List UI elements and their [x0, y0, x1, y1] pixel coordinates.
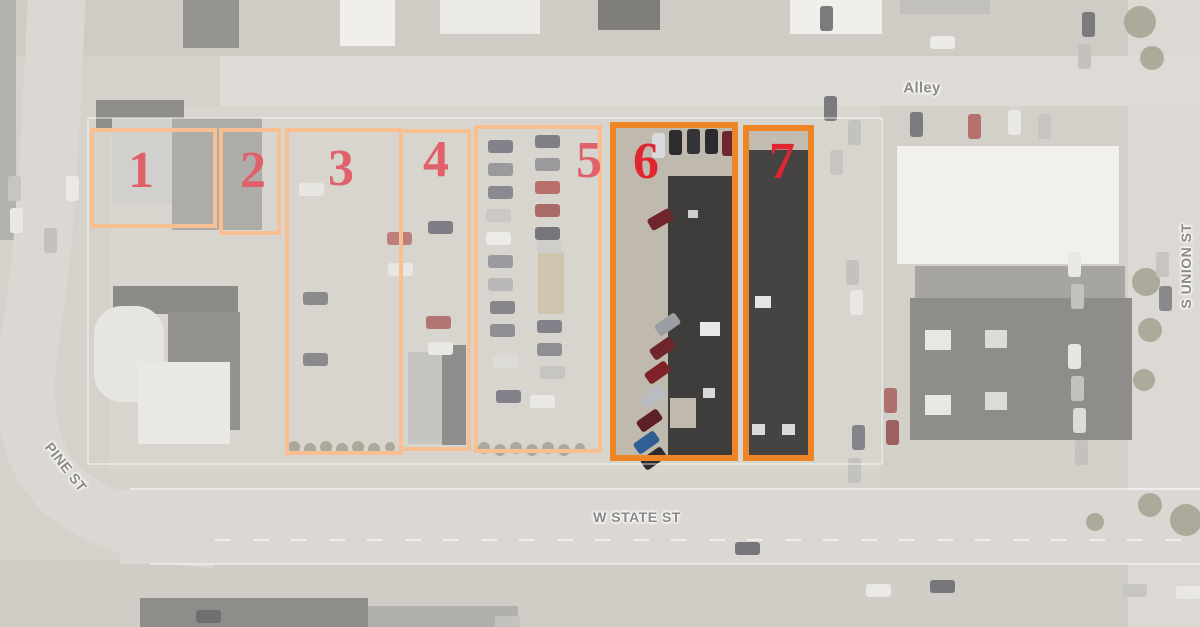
building-roof	[340, 0, 395, 46]
parcel-6-boundary: 6	[610, 122, 738, 461]
building-roof	[900, 0, 990, 14]
ground-block	[0, 0, 16, 240]
ground-block	[220, 56, 1200, 106]
tree	[1124, 6, 1156, 38]
parked-car	[196, 610, 221, 623]
building-roof	[925, 395, 951, 415]
parked-car	[820, 6, 833, 31]
building-roof	[925, 330, 951, 350]
tree	[1138, 493, 1162, 517]
parked-car	[1071, 284, 1084, 309]
parked-car	[930, 580, 955, 593]
parcel-1-boundary: 1	[90, 128, 217, 228]
parked-car	[866, 584, 891, 597]
tree	[1132, 268, 1160, 296]
building-roof	[915, 266, 1125, 300]
parked-car	[886, 420, 899, 445]
building-roof	[440, 0, 540, 34]
building-roof	[138, 362, 230, 444]
parcel-1-number: 1	[128, 145, 154, 197]
parked-car	[848, 120, 861, 145]
parked-car	[1073, 408, 1086, 433]
tree	[1133, 369, 1155, 391]
parcel-4-boundary: 4	[399, 129, 471, 451]
parked-car	[852, 425, 865, 450]
parcel-5-number: 5	[576, 135, 602, 187]
parcel-7-number: 7	[769, 136, 795, 188]
ground-block	[120, 490, 1200, 564]
parked-car	[1156, 252, 1169, 277]
building-roof	[910, 298, 1132, 440]
parked-car	[1008, 110, 1021, 135]
tree	[1140, 46, 1164, 70]
parked-car	[1122, 584, 1147, 597]
parked-car	[846, 260, 859, 285]
parked-car	[10, 208, 23, 233]
parked-car	[66, 176, 79, 201]
parked-car	[44, 228, 57, 253]
building-roof	[985, 392, 1007, 410]
parked-car	[1078, 44, 1091, 69]
parked-car	[968, 114, 981, 139]
parked-car	[1071, 376, 1084, 401]
parked-car	[910, 112, 923, 137]
parked-car	[495, 616, 520, 627]
street-label-w-state-st: W STATE ST	[593, 509, 681, 525]
parcel-2-boundary: 2	[219, 128, 281, 235]
parcel-2-number: 2	[240, 145, 266, 197]
street-label-alley: Alley	[903, 80, 940, 97]
parked-car	[830, 150, 843, 175]
building-roof	[790, 0, 882, 34]
building-roof	[897, 146, 1119, 264]
tree	[1086, 513, 1104, 531]
building-roof	[183, 0, 239, 48]
parked-car	[1038, 114, 1051, 139]
tree	[1138, 318, 1162, 342]
parked-car	[1068, 344, 1081, 369]
parcel-7-boundary: 7	[743, 125, 814, 461]
parked-car	[1075, 440, 1088, 465]
building-roof	[140, 598, 368, 627]
parked-car	[1082, 12, 1095, 37]
parked-car	[8, 176, 21, 201]
building-roof	[985, 330, 1007, 348]
parked-car	[1176, 586, 1200, 599]
aerial-map: 1 2 3 4 5 6 7 Alley PINE ST W STATE ST S…	[0, 0, 1200, 627]
parked-car	[884, 388, 897, 413]
parcel-4-number: 4	[423, 134, 449, 186]
parked-car	[1159, 286, 1172, 311]
building-roof	[598, 0, 660, 30]
parked-car	[848, 458, 861, 483]
parked-car	[735, 542, 760, 555]
parked-car	[930, 36, 955, 49]
parked-car	[850, 290, 863, 315]
parcel-6-number: 6	[633, 136, 659, 188]
parcel-5-boundary: 5	[474, 125, 602, 453]
parcel-3-number: 3	[328, 143, 354, 195]
street-label-s-union-st: S UNION ST	[1178, 223, 1194, 308]
parked-car	[1068, 252, 1081, 277]
parcel-3-boundary: 3	[285, 128, 403, 455]
